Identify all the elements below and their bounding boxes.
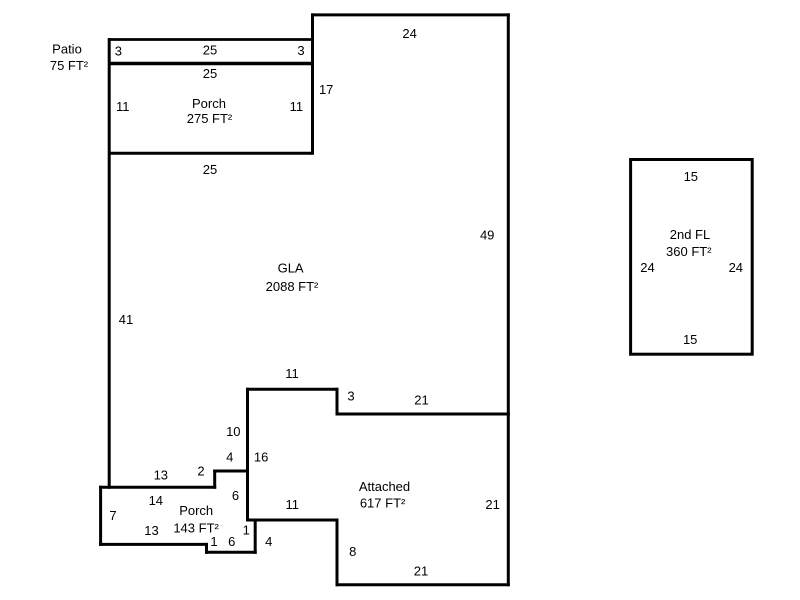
svg-text:10: 10 [226,424,240,439]
svg-text:617 FT²: 617 FT² [360,496,406,511]
svg-text:Porch: Porch [179,503,213,518]
svg-text:1: 1 [210,534,217,549]
svg-text:25: 25 [203,162,217,177]
svg-text:24: 24 [402,26,416,41]
svg-text:13: 13 [154,468,168,483]
svg-text:24: 24 [729,260,743,275]
svg-text:3: 3 [297,43,304,58]
svg-text:2: 2 [197,464,204,479]
svg-text:21: 21 [414,393,428,408]
svg-text:25: 25 [203,66,217,81]
svg-text:49: 49 [480,228,494,243]
svg-text:21: 21 [414,564,428,579]
svg-text:GLA: GLA [278,261,304,276]
svg-text:17: 17 [319,82,333,97]
svg-text:24: 24 [640,260,654,275]
svg-text:360 FT²: 360 FT² [666,244,712,259]
svg-text:4: 4 [226,450,233,465]
svg-text:Patio: Patio [52,42,82,57]
svg-text:2nd FL: 2nd FL [670,227,710,242]
svg-text:14: 14 [149,493,163,508]
svg-text:75 FT²: 75 FT² [50,58,89,73]
svg-text:Porch: Porch [192,96,226,111]
svg-text:41: 41 [119,312,133,327]
svg-text:15: 15 [684,169,698,184]
svg-text:8: 8 [349,544,356,559]
svg-text:4: 4 [265,534,272,549]
svg-text:25: 25 [203,43,217,58]
svg-text:11: 11 [290,99,304,114]
svg-text:11: 11 [116,99,130,114]
svg-text:2088 FT²: 2088 FT² [266,279,319,294]
svg-text:6: 6 [232,488,239,503]
svg-text:1: 1 [243,523,250,538]
svg-text:16: 16 [254,450,268,465]
svg-text:3: 3 [115,43,122,58]
svg-text:3: 3 [347,389,354,404]
svg-text:11: 11 [285,366,299,381]
svg-text:Attached: Attached [359,479,410,494]
svg-text:15: 15 [683,332,697,347]
svg-text:7: 7 [109,508,116,523]
svg-text:13: 13 [144,523,158,538]
svg-text:11: 11 [286,497,300,512]
svg-text:21: 21 [485,497,499,512]
svg-text:6: 6 [228,534,235,549]
svg-text:275 FT²: 275 FT² [187,111,233,126]
